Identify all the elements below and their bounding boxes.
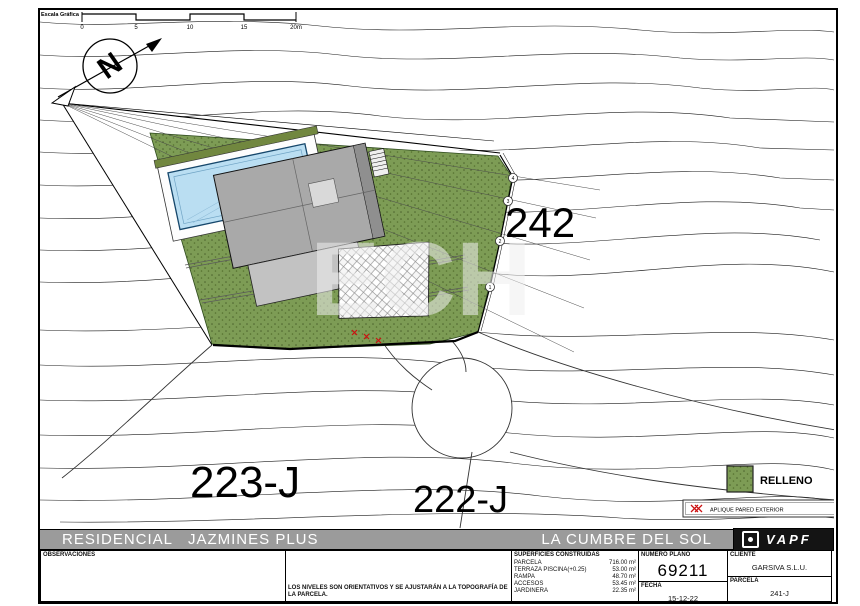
surface-name: JARDINERA	[514, 588, 548, 595]
scale-bar: Escala Gráfica 0 5 10 15 20m	[41, 12, 302, 31]
plano-fecha-cell: NUMERO PLANO 69211 FECHA 15-12-22	[638, 550, 728, 602]
fecha-label: FECHA	[639, 582, 727, 591]
surface-row: TERRAZA PISCINA(+0.25) 53.00 m²	[512, 567, 638, 574]
surface-name: ACCESOS	[514, 581, 543, 588]
vapf-logo: VAPF	[733, 528, 834, 551]
roof-skylight	[308, 178, 338, 207]
svg-text:N: N	[92, 46, 129, 85]
plot-label-223J: 223-J	[190, 458, 300, 507]
parcela-label: PARCELA	[728, 577, 831, 586]
surfaces-cell: SUPERFICIES CONSTRUIDAS PARCELA 716.00 m…	[511, 550, 639, 602]
vapf-logo-icon	[742, 531, 759, 548]
cliente-label: CLIENTE	[728, 551, 831, 560]
legend: RELLENO APLIQUE PARED EXTERIOR	[683, 466, 834, 517]
cliente-value: GARSIVA S.L.U.	[728, 563, 831, 572]
vapf-logo-text: VAPF	[766, 532, 812, 547]
numero-plano-value: 69211	[639, 561, 727, 581]
site-plan: PISCINA A DESBORD. NIVEL +0.25 4 3 2	[40, 10, 834, 529]
numero-plano-label: NUMERO PLANO	[639, 551, 727, 560]
surface-value: 716.00 m²	[609, 560, 636, 567]
surface-value: 53.00 m²	[612, 567, 636, 574]
scale-tick: 20m	[290, 25, 302, 31]
surface-row: ACCESOS 53.45 m²	[512, 581, 638, 588]
scale-tick: 10	[187, 25, 194, 31]
location-title: LA CUMBRE DEL SOL	[541, 531, 712, 548]
parcela-value: 241-J	[728, 589, 831, 598]
surface-value: 48.70 m²	[612, 574, 636, 581]
levels-note: LOS NIVELES SON ORIENTATIVOS Y SE AJUSTA…	[288, 585, 511, 599]
drawing-sheet: PISCINA A DESBORD. NIVEL +0.25 4 3 2	[0, 0, 860, 606]
plot-label-242: 242	[505, 199, 575, 246]
marker-4: 4	[512, 176, 515, 182]
surface-row: JARDINERA 22.35 m²	[512, 588, 638, 595]
surface-name: TERRAZA PISCINA(+0.25)	[514, 567, 587, 574]
scale-tick: 5	[134, 25, 138, 31]
scale-bar-title: Escala Gráfica	[41, 12, 80, 18]
scale-tick: 0	[80, 25, 84, 31]
observaciones-label: OBSERVACIONES	[41, 551, 285, 560]
levels-note-cell: LOS NIVELES SON ORIENTATIVOS Y SE AJUSTA…	[285, 550, 512, 602]
surface-row: RAMPA 48.70 m²	[512, 574, 638, 581]
surface-value: 53.45 m²	[612, 581, 636, 588]
title-band: RESIDENCIAL JAZMINES PLUS LA CUMBRE DEL …	[40, 529, 834, 550]
observaciones-cell: OBSERVACIONES	[40, 550, 286, 602]
project-title: RESIDENCIAL JAZMINES PLUS	[62, 531, 319, 548]
surface-value: 22.35 m²	[612, 588, 636, 595]
scale-tick: 15	[241, 25, 248, 31]
surface-name: RAMPA	[514, 574, 535, 581]
surface-name: PARCELA	[514, 560, 542, 567]
surfaces-title: SUPERFICIES CONSTRUIDAS	[512, 551, 638, 560]
watermark: ECH	[310, 221, 532, 338]
legend-aplique-label: APLIQUE PARED EXTERIOR	[710, 508, 784, 514]
fecha-value: 15-12-22	[639, 594, 727, 603]
surface-row: PARCELA 716.00 m²	[512, 560, 638, 567]
cliente-parcela-cell: CLIENTE GARSIVA S.L.U. PARCELA 241-J	[727, 550, 832, 602]
north-arrow-icon: N	[52, 38, 162, 106]
title-block: OBSERVACIONES LOS NIVELES SON ORIENTATIV…	[40, 550, 836, 602]
plot-label-222J: 222-J	[413, 479, 508, 521]
legend-relleno-swatch	[727, 466, 753, 492]
legend-relleno-label: RELLENO	[760, 475, 813, 487]
